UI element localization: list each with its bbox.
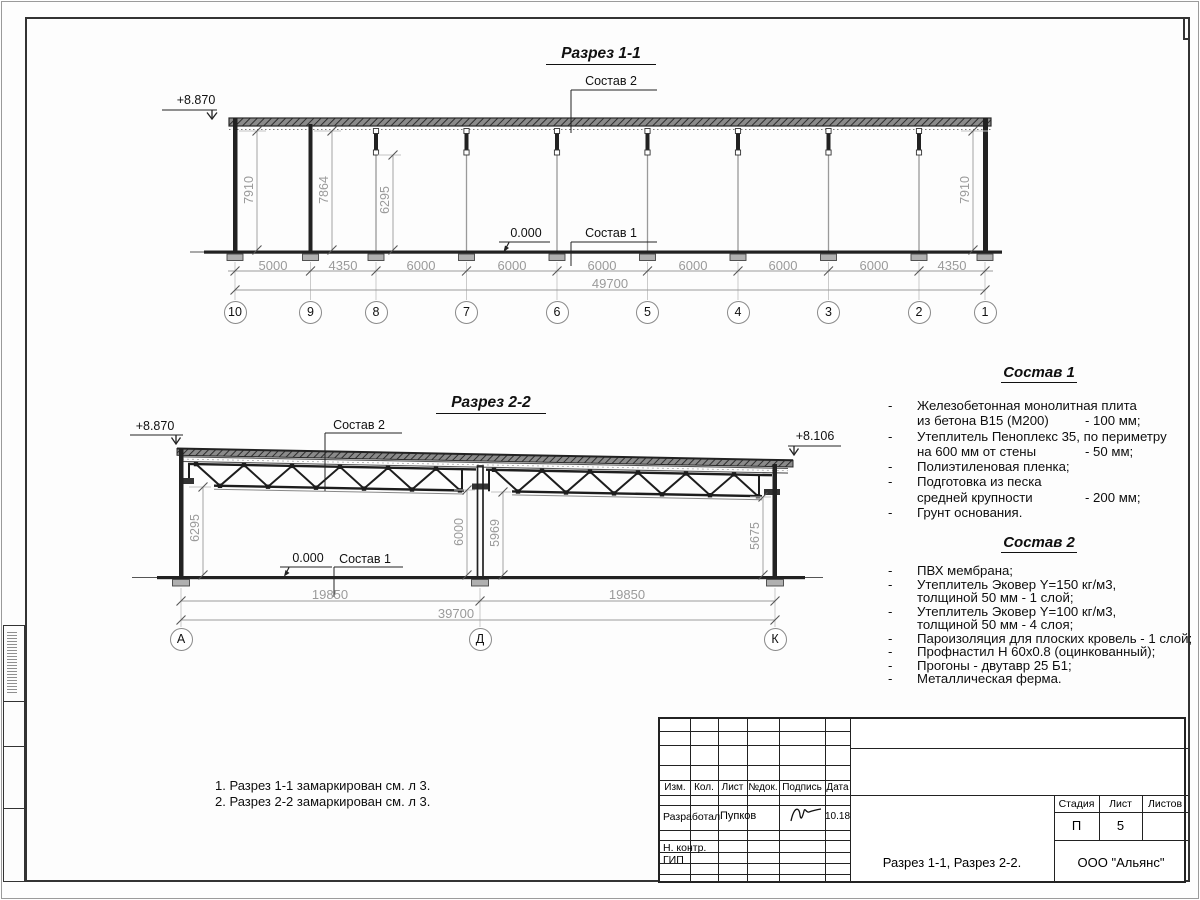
sostav2-callout-1: Состав 2: [576, 74, 646, 88]
composition-specs: Состав 1 -Железобетонная монолитная плит…: [880, 364, 1198, 685]
drawing-sheet: Разрез 1-1 +8.870 Состав 2 0.000 Состав …: [0, 0, 1200, 900]
axis-bubble-10: 10: [224, 301, 247, 324]
sostav1-list: -Железобетонная монолитная плита из бето…: [880, 398, 1198, 520]
level-value-top: +8.870: [166, 93, 226, 107]
height-dim-5675: 5675: [748, 496, 762, 576]
tb-stage-header: Стадия: [1054, 798, 1099, 810]
tb-sheets-header: Листов: [1142, 798, 1188, 810]
tb-col-izm: Изм.: [660, 782, 690, 793]
span-dim-2: 19850: [592, 587, 662, 602]
axis-bubble-5: 5: [636, 301, 659, 324]
span-dim-1: 19850: [295, 587, 365, 602]
tb-doc-title: Разрез 1-1, Разрез 2-2.: [850, 855, 1054, 870]
bay-dim-8: 6000: [844, 258, 904, 273]
sostav1-heading: Состав 1: [880, 364, 1198, 382]
level-value-zero-2: 0.000: [278, 551, 338, 565]
interior-columns: [373, 129, 921, 252]
tb-developed-name: Пупков: [720, 810, 756, 822]
height-dim-5969: 5969: [488, 493, 502, 573]
axis-bubble-8: 8: [365, 301, 388, 324]
height-dim-6295-1: 6295: [378, 160, 392, 240]
signature: [785, 803, 823, 827]
axis-bubble-D: Д: [469, 628, 492, 651]
height-dim-7910-right: 7910: [958, 150, 972, 230]
tb-col-kol: Кол.: [690, 782, 718, 793]
tb-sheet-value: 5: [1099, 818, 1142, 833]
title-block: Изм. Кол. Лист №док. Подпись Дата Разраб…: [658, 717, 1186, 883]
section2-title: Разрез 2-2: [436, 394, 546, 414]
bay-dim-3: 6000: [391, 258, 451, 273]
height-dim-6000: 6000: [452, 492, 466, 572]
total-dim-39700: 39700: [426, 606, 486, 621]
tb-col-ndok: №док.: [747, 782, 779, 793]
note-2: 2. Разрез 2-2 замаркирован см. л 3.: [215, 794, 430, 810]
bay-dim-1: 5000: [243, 258, 303, 273]
tb-col-podpis: Подпись: [779, 782, 825, 793]
height-dim-7910-left: 7910: [242, 150, 256, 230]
level-mark-right: [788, 446, 841, 455]
sostav2-heading: Состав 2: [880, 534, 1198, 552]
drawing-notes: 1. Разрез 1-1 замаркирован см. л 3. 2. Р…: [215, 778, 430, 809]
level-value-zero-1: 0.000: [496, 226, 556, 240]
height-dim-6295-2: 6295: [188, 488, 202, 568]
level-mark-zero-2: [280, 567, 332, 577]
level-mark-top: [162, 110, 217, 119]
bay-dim-7: 6000: [753, 258, 813, 273]
axis-bubble-1: 1: [974, 301, 997, 324]
sostav2-list: -ПВХ мембрана; -Утеплитель Эковер Y=150 …: [880, 563, 1198, 685]
axis-bubble-4: 4: [727, 301, 750, 324]
section1-title: Разрез 1-1: [546, 45, 656, 65]
level-value-right: +8.106: [785, 429, 845, 443]
sostav2-callout-2: Состав 2: [324, 418, 394, 432]
axis-bubble-A: А: [170, 628, 193, 651]
bay-dim-2: 4350: [313, 258, 373, 273]
height-dim-7864: 7864: [317, 150, 331, 230]
bay-dim-5: 6000: [572, 258, 632, 273]
sostav1-callout-1: Состав 1: [576, 226, 646, 240]
tb-developed-label: Разработал: [663, 811, 720, 823]
bay-dim-9: 4350: [922, 258, 982, 273]
bay-dim-6: 6000: [663, 258, 723, 273]
level-value-left: +8.870: [125, 419, 185, 433]
level-mark-left: [130, 435, 183, 444]
note-1: 1. Разрез 1-1 замаркирован см. л 3.: [215, 778, 430, 794]
axis-bubble-9: 9: [299, 301, 322, 324]
axis-bubble-2: 2: [908, 301, 931, 324]
axis-bubble-6: 6: [546, 301, 569, 324]
section-2-2-drawing: [130, 433, 841, 627]
tb-developed-date: 10.18: [825, 811, 850, 822]
sostav1-callout-2: Состав 1: [330, 552, 400, 566]
tb-col-list: Лист: [718, 782, 747, 793]
axis-bubble-7: 7: [455, 301, 478, 324]
axis-bubble-3: 3: [817, 301, 840, 324]
bay-dim-4: 6000: [482, 258, 542, 273]
axis-bubble-K: К: [764, 628, 787, 651]
total-dim-49700: 49700: [580, 276, 640, 291]
tb-col-data: Дата: [825, 782, 850, 793]
tb-ncontr-label: Н. контр.: [663, 842, 706, 854]
tb-gip-label: ГИП: [663, 854, 684, 866]
tb-stage-value: П: [1054, 818, 1099, 833]
tb-company: ООО "Альянс": [1054, 855, 1188, 870]
tb-sheet-header: Лист: [1099, 798, 1142, 810]
